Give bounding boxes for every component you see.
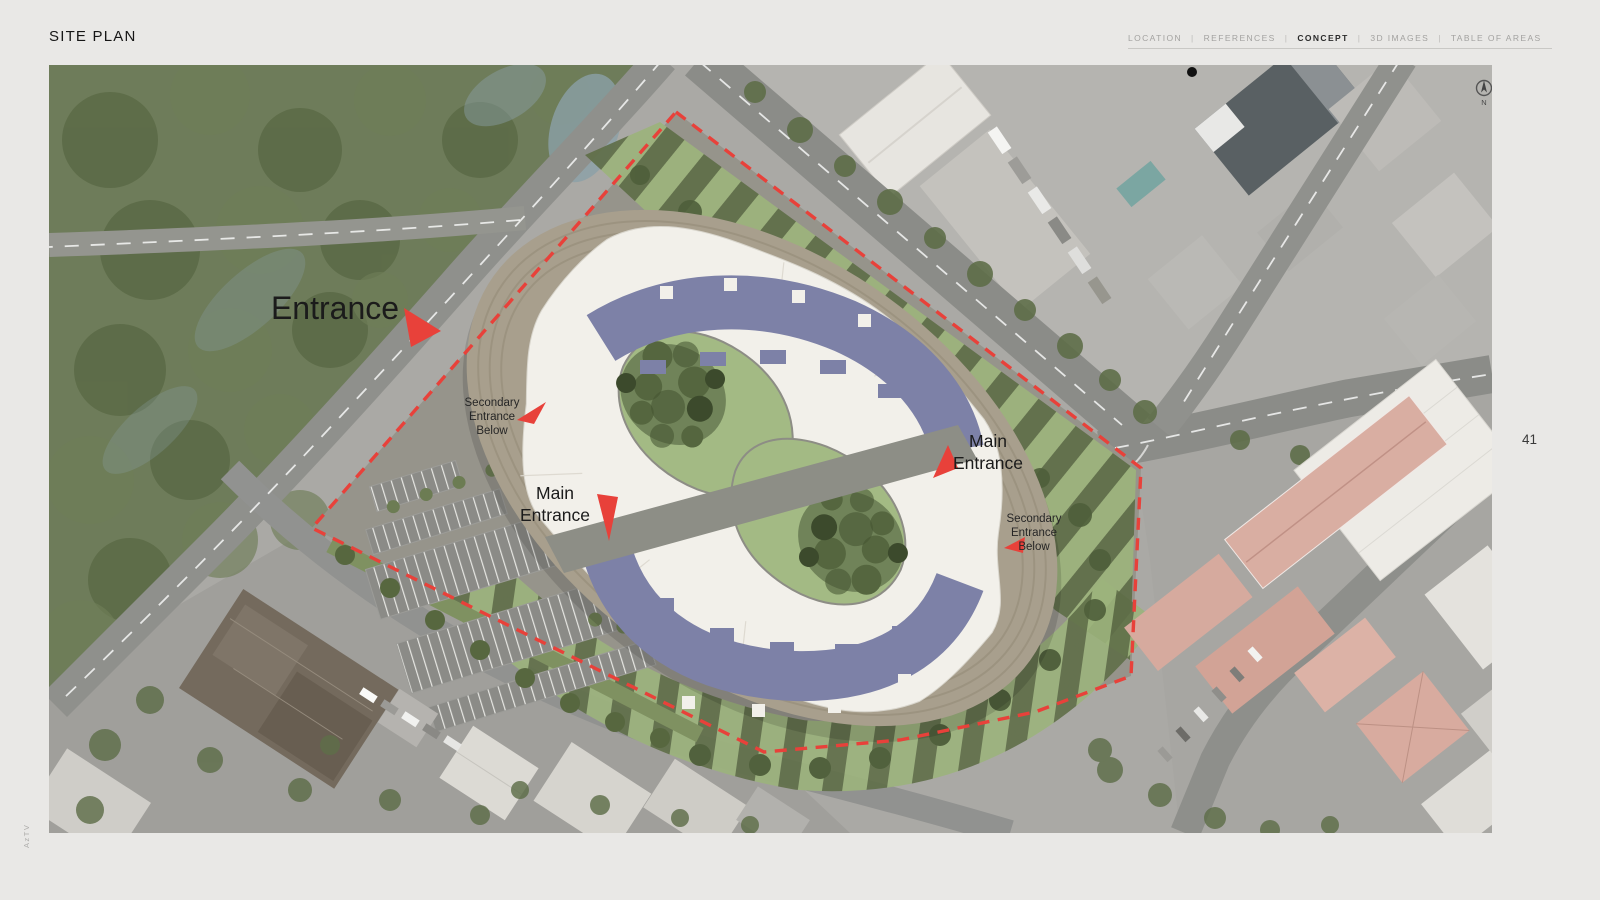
main-entrance-left-label: Main (536, 483, 574, 503)
nav-table-of-areas[interactable]: TABLE OF AREAS (1451, 33, 1542, 43)
nav-separator: | (1358, 33, 1362, 43)
nav-references[interactable]: REFERENCES (1204, 33, 1276, 43)
svg-text:Entrance: Entrance (469, 411, 515, 423)
nav-separator: | (1285, 33, 1289, 43)
site-plan-svg: N Entrance Secondary Entrance Below Main… (49, 65, 1492, 833)
site-plan-map: N Entrance Secondary Entrance Below Main… (49, 65, 1492, 833)
svg-text:Secondary: Secondary (1007, 513, 1062, 525)
svg-text:Secondary: Secondary (465, 397, 520, 409)
nav-location[interactable]: LOCATION (1128, 33, 1182, 43)
nav-concept[interactable]: CONCEPT (1297, 33, 1348, 43)
nav-3d-images[interactable]: 3D IMAGES (1370, 33, 1429, 43)
svg-text:Entrance: Entrance (1011, 527, 1057, 539)
nav-separator: | (1191, 33, 1195, 43)
nav-separator: | (1438, 33, 1442, 43)
map-marker-dot (1187, 67, 1197, 77)
entrance-label: Entrance (271, 290, 399, 326)
main-entrance-right-label: Main (969, 431, 1007, 451)
svg-text:N: N (1481, 98, 1486, 107)
top-navigation: LOCATION | REFERENCES | CONCEPT | 3D IMA… (1128, 33, 1552, 43)
svg-text:Entrance: Entrance (953, 453, 1023, 473)
nav-underline (1128, 48, 1552, 49)
svg-text:Entrance: Entrance (520, 505, 590, 525)
watermark: AzTV (22, 824, 31, 848)
page-number: 41 (1522, 432, 1537, 447)
svg-text:Below: Below (476, 425, 508, 437)
svg-text:Below: Below (1018, 541, 1050, 553)
page-title: SITE PLAN (49, 28, 137, 45)
